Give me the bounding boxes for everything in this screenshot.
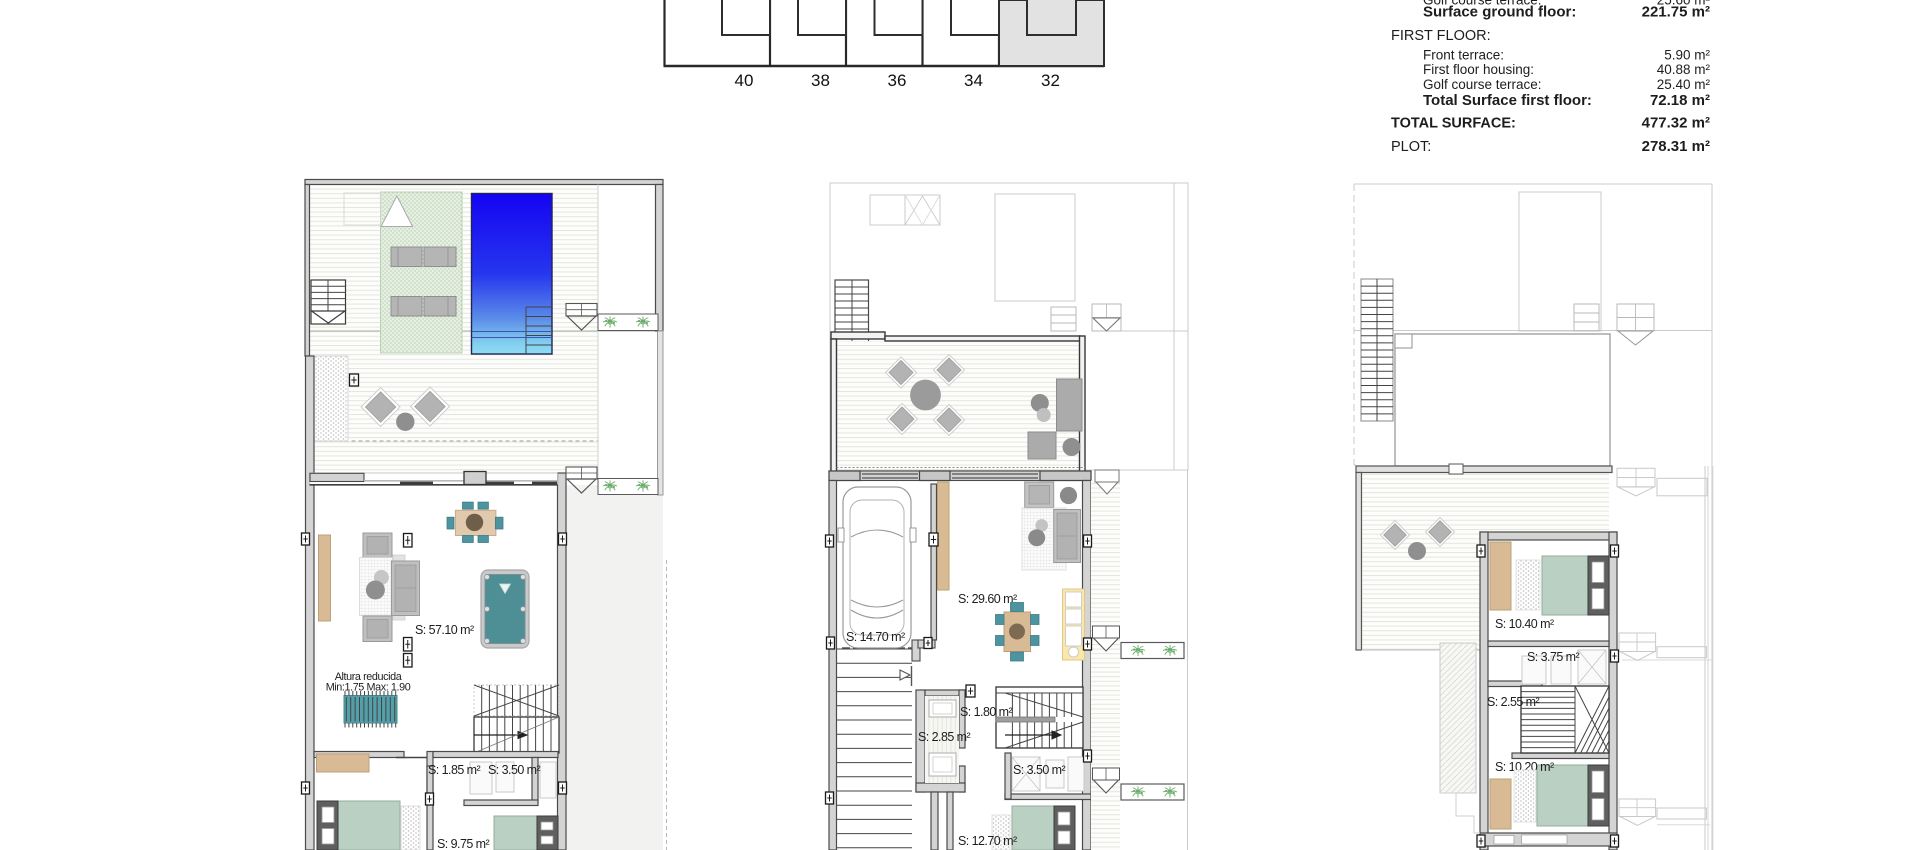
- svg-text:S: 57.10 m²: S: 57.10 m²: [415, 623, 474, 637]
- svg-text:S: 1.85 m²: S: 1.85 m²: [428, 763, 481, 777]
- svg-text:221.75 m²: 221.75 m²: [1642, 4, 1710, 21]
- svg-text:36: 36: [888, 71, 907, 90]
- svg-text:34: 34: [964, 71, 983, 90]
- svg-text:S: 2.85 m²: S: 2.85 m²: [918, 730, 971, 744]
- svg-text:S: 14.70 m²: S: 14.70 m²: [846, 630, 905, 644]
- svg-text:S: 3.50 m²: S: 3.50 m²: [488, 763, 541, 777]
- svg-text:S: 1.80 m²: S: 1.80 m²: [960, 705, 1013, 719]
- svg-text:S: 2.55 m²: S: 2.55 m²: [1487, 695, 1540, 709]
- svg-text:S: 12.70 m²: S: 12.70 m²: [958, 834, 1017, 848]
- svg-text:Golf course terrace:: Golf course terrace:: [1423, 77, 1542, 92]
- svg-text:38: 38: [811, 71, 830, 90]
- svg-text:First floor housing:: First floor housing:: [1423, 62, 1534, 77]
- svg-text:TOTAL SURFACE:: TOTAL SURFACE:: [1391, 116, 1516, 132]
- svg-text:40.88 m²: 40.88 m²: [1657, 62, 1711, 77]
- svg-text:72.18 m²: 72.18 m²: [1650, 92, 1710, 109]
- svg-text:Front terrace:: Front terrace:: [1423, 48, 1504, 63]
- svg-text:5.90 m²: 5.90 m²: [1664, 48, 1710, 63]
- svg-text:Total Surface first floor:: Total Surface first floor:: [1423, 92, 1592, 109]
- svg-text:S: 10.40 m²: S: 10.40 m²: [1495, 617, 1554, 631]
- svg-text:25.40 m²: 25.40 m²: [1657, 77, 1711, 92]
- svg-text:FIRST FLOOR:: FIRST FLOOR:: [1391, 28, 1491, 44]
- svg-text:S: 9.75 m²: S: 9.75 m²: [437, 837, 490, 850]
- svg-text:40: 40: [735, 71, 754, 90]
- svg-text:278.31 m²: 278.31 m²: [1642, 138, 1710, 155]
- svg-text:S: 3.75 m²: S: 3.75 m²: [1527, 650, 1580, 664]
- svg-text:S: 3.50 m²: S: 3.50 m²: [1013, 763, 1066, 777]
- svg-text:Surface ground floor:: Surface ground floor:: [1423, 4, 1576, 21]
- svg-text:477.32 m²: 477.32 m²: [1642, 115, 1710, 132]
- svg-text:32: 32: [1041, 71, 1060, 90]
- svg-text:S: 29.60 m²: S: 29.60 m²: [958, 592, 1017, 606]
- svg-text:PLOT:: PLOT:: [1391, 139, 1431, 155]
